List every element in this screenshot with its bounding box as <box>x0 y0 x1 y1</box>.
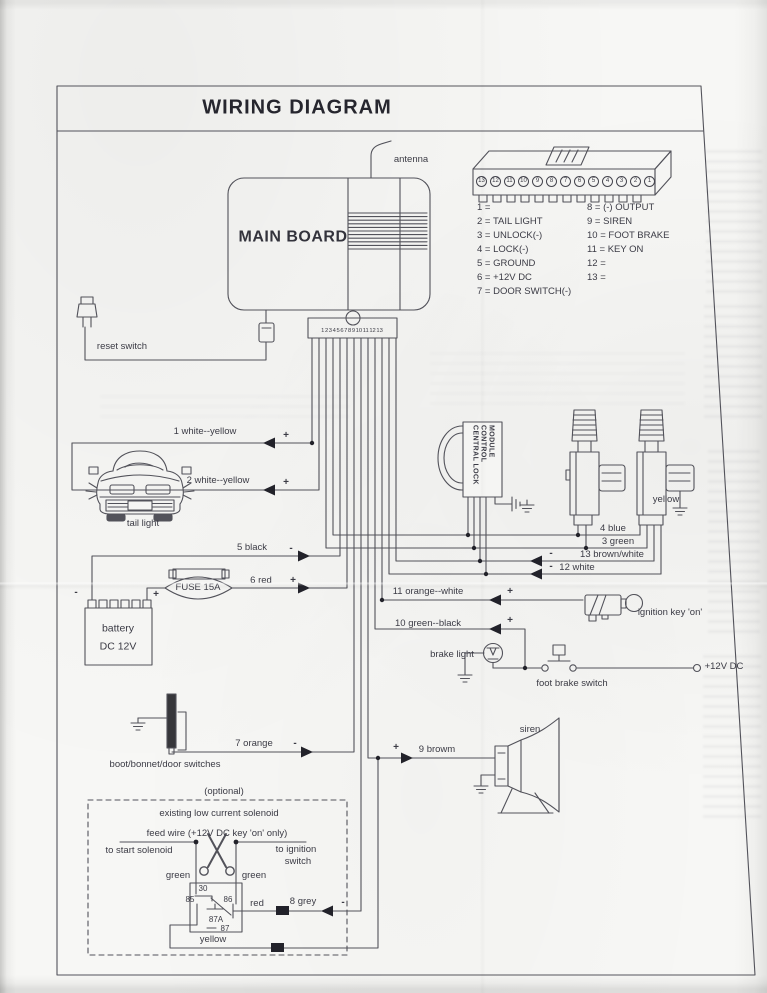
module-label-line: MODULE <box>488 425 495 495</box>
ignition-key-label: ignition key 'on' <box>638 608 702 618</box>
relay-pin-86: 86 <box>224 896 233 904</box>
pin-circle: 1 <box>644 176 655 187</box>
ground-icon <box>520 500 534 512</box>
pin-circle: 9 <box>532 176 543 187</box>
relay-pin-87: 87 <box>221 925 230 933</box>
relay-pin-30: 30 <box>199 885 208 893</box>
wire-9-sign: + <box>393 743 399 754</box>
wire-11-sign: + <box>507 587 513 598</box>
wire-10-label: 10 green--black <box>395 619 461 629</box>
wire-1-label: 1 white--yellow <box>174 427 237 437</box>
legend-item: 2 = TAIL LIGHT <box>477 215 571 229</box>
wire-6-sign: + <box>290 576 296 587</box>
optional-heading-2: feed wire (+12V DC key 'on' only) <box>147 829 288 839</box>
battery-label-1: battery <box>102 623 134 634</box>
wire-2-path <box>72 338 319 490</box>
optional-caption: (optional) <box>204 787 244 797</box>
wire-6-label: 6 red <box>250 576 272 586</box>
boot-switch-drawing <box>138 694 186 754</box>
fuse-label: FUSE 15A <box>176 583 221 593</box>
wire-5-sign: - <box>289 544 292 555</box>
legend-item: 10 = FOOT BRAKE <box>587 229 669 243</box>
legend-item: 11 = KEY ON <box>587 243 669 257</box>
pin-circle: 2 <box>630 176 641 187</box>
door-lock-actuator-right <box>637 410 694 574</box>
actuator-yellow-label: yellow <box>653 495 679 505</box>
wire-7-label: 7 orange <box>235 739 273 749</box>
pin-legend-left: 1 = 2 = TAIL LIGHT 3 = UNLOCK(-) 4 = LOC… <box>477 201 571 299</box>
reset-switch-label: reset switch <box>97 342 147 352</box>
page-title: WIRING DIAGRAM <box>202 98 392 119</box>
strip-pin-numbers: 1 2 3 4 5 6 7 8 9 10 11 12 13 <box>321 328 383 334</box>
ground-icon <box>131 718 145 730</box>
legend-item: 3 = UNLOCK(-) <box>477 229 571 243</box>
wire-2-sign: + <box>283 478 289 489</box>
connector-latch <box>546 147 589 165</box>
pin-circle: 11 <box>504 176 515 187</box>
reset-switch-symbol <box>81 297 93 304</box>
module-label-line: CONTROL <box>480 425 487 495</box>
wire-12-label: 12 white <box>559 563 594 573</box>
wire-13-label: 13 brown/white <box>580 550 644 560</box>
wire-2-label: 2 white--yellow <box>187 476 250 486</box>
wire-6-path <box>147 338 347 600</box>
brake-light-label: brake light <box>430 650 474 660</box>
legend-item: 9 = SIREN <box>587 215 669 229</box>
central-lock-module-label: CENTRAL LOCK CONTROL MODULE <box>464 425 502 495</box>
siren-label: siren <box>520 725 541 735</box>
legend-item: 1 = <box>477 201 571 215</box>
module-label-line: CENTRAL LOCK <box>472 425 479 495</box>
wire-3-label: 3 green <box>602 537 634 547</box>
connector-pin-numbers: 13 12 11 10 9 8 7 6 5 4 3 2 1 <box>476 176 655 187</box>
wire-connector-block <box>271 943 284 952</box>
plus12-label: +12V DC <box>705 662 744 672</box>
wire-1-sign: + <box>283 431 289 442</box>
legend-item: 5 = GROUND <box>477 257 571 271</box>
wire-10-sign: + <box>507 616 513 627</box>
legend-item: 8 = (-) OUTPUT <box>587 201 669 215</box>
board-coil-hatch <box>348 213 427 249</box>
antenna-label: antenna <box>394 155 428 165</box>
pin-circle: 10 <box>518 176 529 187</box>
wire-5-label: 5 black <box>237 543 267 553</box>
legend-item: 6 = +12V DC <box>477 271 571 285</box>
relay-pin-85: 85 <box>186 896 195 904</box>
pin-circle: 3 <box>616 176 627 187</box>
tail-light-label: tail light <box>127 519 159 529</box>
wire-9-label: 9 browm <box>419 745 455 755</box>
to-ignition-label: to ignition <box>276 845 317 855</box>
wire-4-label: 4 blue <box>600 524 626 534</box>
ignition-key-drawing <box>585 595 643 622</box>
to-start-solenoid-label: to start solenoid <box>105 846 172 856</box>
legend-item: 13 = <box>587 271 669 285</box>
pin-circle: 6 <box>574 176 585 187</box>
yellow-wire-label: yellow <box>200 935 226 945</box>
pin-circle: 8 <box>546 176 557 187</box>
pin-legend-right: 8 = (-) OUTPUT 9 = SIREN 10 = FOOT BRAKE… <box>587 201 669 285</box>
legend-item: 4 = LOCK(-) <box>477 243 571 257</box>
wire-connector-block <box>276 906 289 915</box>
wire-8-label: 8 grey <box>290 897 316 907</box>
wire-13-sign: - <box>549 549 552 560</box>
red-wire-label: red <box>250 899 264 909</box>
pin-circle: 5 <box>588 176 599 187</box>
pin-circle: 4 <box>602 176 613 187</box>
pin-circle: 12 <box>490 176 501 187</box>
green-left-label: green <box>166 871 190 881</box>
ground-icon <box>458 670 472 682</box>
main-board-label: MAIN BOARD <box>239 230 348 247</box>
green-right-label: green <box>242 871 266 881</box>
wire-11-label: 11 orange--white <box>393 587 464 597</box>
foot-brake-switch-label: foot brake switch <box>536 679 607 689</box>
pin-circle: 13 <box>476 176 487 187</box>
battery-plus-sign: + <box>153 590 159 601</box>
wire-7-sign: - <box>293 739 296 750</box>
battery-label-2: DC 12V <box>100 641 137 652</box>
to-ignition-label-2: switch <box>285 857 311 867</box>
boot-switches-label: boot/bonnet/door switches <box>110 760 221 770</box>
car-drawing <box>86 451 194 521</box>
scissors-icon <box>200 834 234 875</box>
reset-plug <box>259 323 274 342</box>
pin-circle: 7 <box>560 176 571 187</box>
connector-top <box>473 151 671 169</box>
legend-item: 7 = DOOR SWITCH(-) <box>477 285 571 299</box>
legend-item: 12 = <box>587 257 669 271</box>
scanned-wiring-diagram-page: WIRING DIAGRAM antenna MAIN BOARD 13 12 … <box>0 0 767 993</box>
battery-minus-sign: - <box>74 588 77 599</box>
antenna-wire <box>371 141 391 178</box>
optional-heading-1: existing low current solenoid <box>159 809 278 819</box>
wire-8-sign: - <box>341 898 344 909</box>
wire-12-sign: - <box>549 562 552 573</box>
wire-5-path <box>92 338 340 600</box>
ground-icon <box>474 781 488 793</box>
